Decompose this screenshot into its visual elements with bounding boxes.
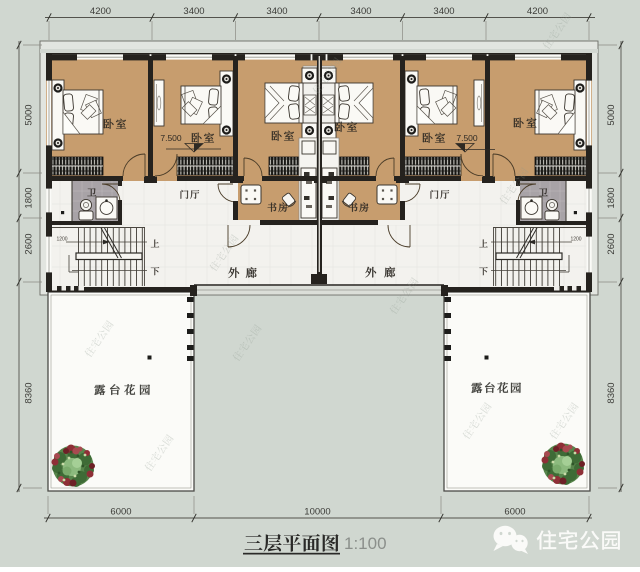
svg-text:3400: 3400 <box>266 6 287 17</box>
svg-text:7.500: 7.500 <box>456 133 478 143</box>
svg-text:1800: 1800 <box>606 187 617 208</box>
svg-text:2600: 2600 <box>24 233 35 254</box>
svg-text:4200: 4200 <box>527 6 548 17</box>
svg-text:6000: 6000 <box>110 507 131 518</box>
svg-text:7.500: 7.500 <box>160 133 182 143</box>
svg-text:3400: 3400 <box>433 6 454 17</box>
svg-text:3400: 3400 <box>350 6 371 17</box>
svg-text:3400: 3400 <box>183 6 204 17</box>
svg-text:8360: 8360 <box>24 382 35 403</box>
svg-text:1:100: 1:100 <box>344 534 387 553</box>
svg-text:5000: 5000 <box>24 104 35 125</box>
svg-text:2600: 2600 <box>606 233 617 254</box>
svg-text:1200: 1200 <box>570 237 581 243</box>
svg-text:4200: 4200 <box>90 6 111 17</box>
svg-text:1200: 1200 <box>56 237 67 243</box>
svg-text:6000: 6000 <box>504 507 525 518</box>
svg-text:8360: 8360 <box>606 382 617 403</box>
svg-text:1800: 1800 <box>24 187 35 208</box>
svg-text:10000: 10000 <box>304 507 330 518</box>
svg-text:5000: 5000 <box>606 104 617 125</box>
